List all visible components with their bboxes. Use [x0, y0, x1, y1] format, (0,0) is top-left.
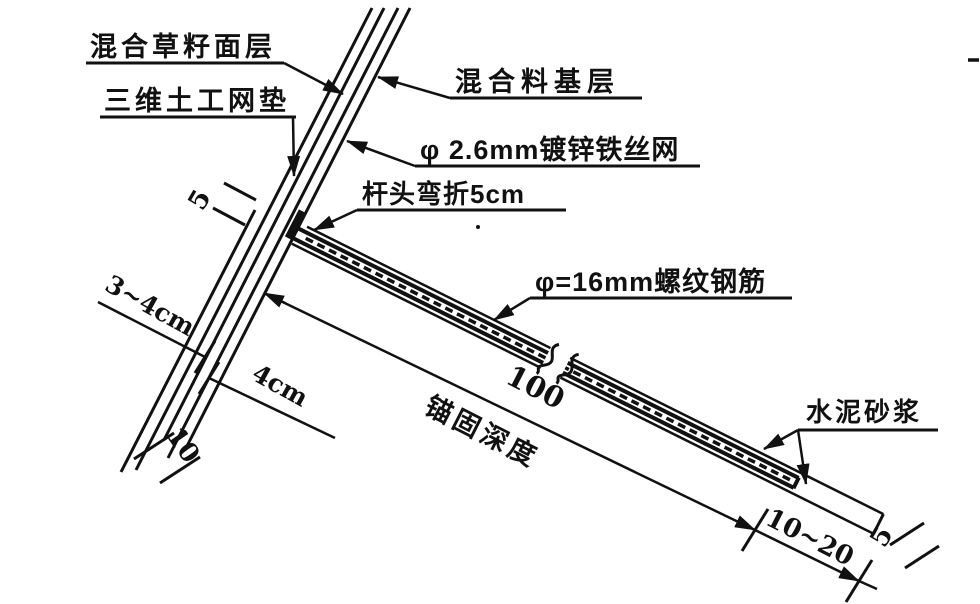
plug-dim-extension — [859, 581, 877, 589]
wire-mesh-label: φ 2.6mm镀锌铁丝网 — [420, 135, 679, 165]
dim-end-cover: 5 — [865, 522, 900, 553]
bent-head-leader — [314, 210, 357, 230]
dim-surface-thickness: 3~4cm — [100, 269, 199, 342]
dim-base-thickness: 4cm — [247, 359, 313, 413]
dim-head-bend: 5 — [183, 185, 218, 216]
tick-plug-end — [846, 560, 872, 602]
mortar-label: 水泥砂浆 — [806, 397, 922, 427]
anchor-bar-assembly — [287, 216, 887, 541]
tick-head-b — [213, 208, 245, 225]
wire-mesh-leader — [347, 141, 415, 166]
grass-layer-leader — [284, 63, 343, 94]
anchor-depth-label: 锚固深度 — [420, 390, 545, 474]
bent-head-label: 杆头弯折5cm — [362, 179, 525, 209]
tick-head-a — [224, 183, 256, 200]
anchor-detail-drawing: 混合草籽面层 三维土工网垫 混合料基层 φ 2.6mm镀锌铁丝网 杆头弯折5cm… — [0, 0, 980, 604]
mortar-leader-2 — [798, 430, 806, 484]
base-layer-leader — [378, 77, 450, 98]
rebar-end-cap — [793, 478, 798, 489]
mortar-leader-1 — [764, 430, 798, 449]
geomat-label: 三维土工网垫 — [104, 86, 290, 116]
dim-plug-length: 10~20 — [761, 503, 859, 572]
rebar-label: φ=16mm螺纹钢筋 — [535, 266, 766, 297]
tick-end-b — [905, 546, 939, 568]
geomat-leader — [293, 117, 294, 176]
diagram-canvas: 混合草籽面层 三维土工网垫 混合料基层 φ 2.6mm镀锌铁丝网 杆头弯折5cm… — [0, 0, 980, 604]
base-layer-label: 混合料基层 — [455, 66, 620, 97]
artifact-dot — [476, 225, 480, 229]
grass-layer-label: 混合草籽面层 — [90, 31, 276, 62]
dim-total-thickness: 10 — [160, 422, 205, 469]
rebar-leader — [494, 298, 530, 320]
slope-layer-lines — [121, 8, 410, 472]
